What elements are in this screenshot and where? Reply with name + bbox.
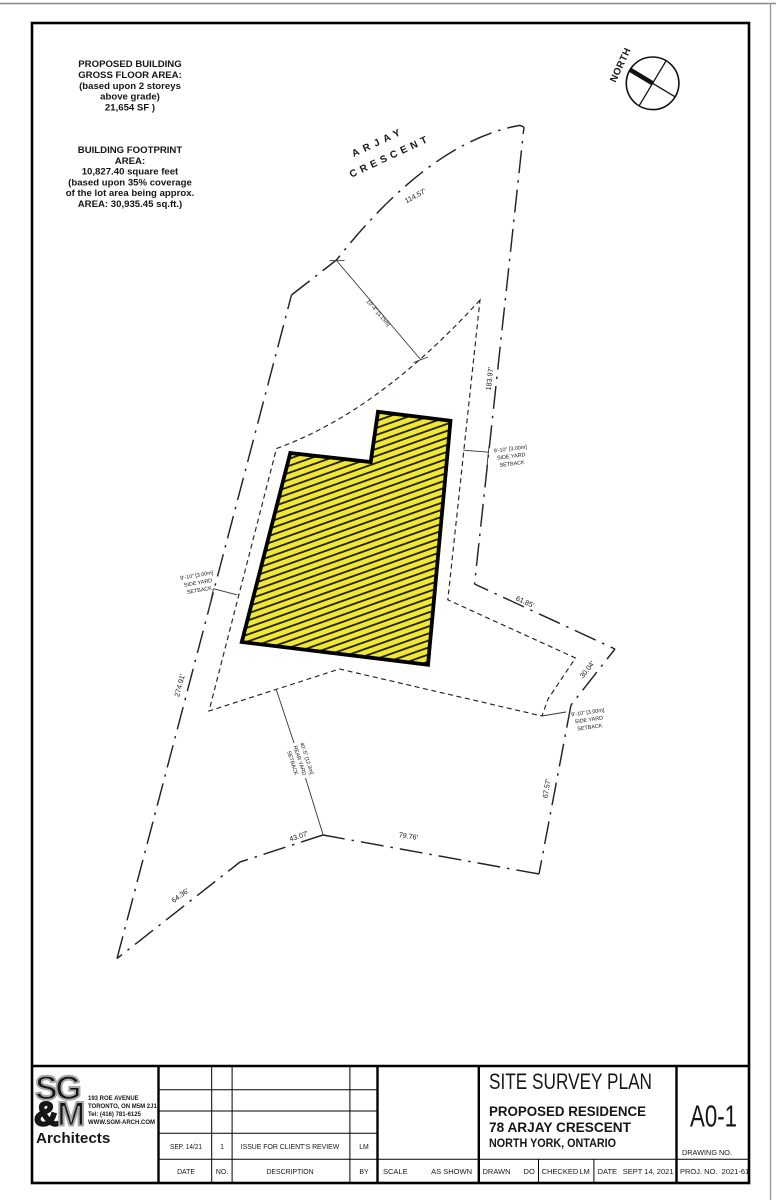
svg-text:AREA:: AREA: — [115, 156, 145, 167]
svg-text:SITE SURVEY PLAN: SITE SURVEY PLAN — [489, 1069, 652, 1094]
svg-text:DRAWN: DRAWN — [483, 1167, 511, 1176]
svg-text:DO: DO — [524, 1167, 535, 1176]
svg-text:A0-1: A0-1 — [690, 1099, 737, 1134]
svg-text:WWW.SGM-ARCH.COM: WWW.SGM-ARCH.COM — [88, 1120, 155, 1126]
svg-text:PROPOSED BUILDING: PROPOSED BUILDING — [78, 59, 181, 70]
svg-text:AREA: 30,935.45 sq.ft.): AREA: 30,935.45 sq.ft.) — [78, 199, 183, 210]
svg-text:DRAWING NO.: DRAWING NO. — [682, 1148, 732, 1157]
svg-text:of the lot area being approx.: of the lot area being approx. — [66, 188, 194, 199]
svg-text:193 ROE AVENUE: 193 ROE AVENUE — [88, 1096, 139, 1102]
svg-text:Tel: (416) 781-6125: Tel: (416) 781-6125 — [88, 1112, 142, 1118]
svg-text:(based upon 35% coverage: (based upon 35% coverage — [68, 177, 192, 188]
svg-text:DATE: DATE — [177, 1169, 195, 1176]
svg-text:&: & — [34, 1096, 58, 1134]
svg-text:DATE: DATE — [598, 1167, 617, 1176]
svg-text:1: 1 — [220, 1144, 224, 1151]
svg-text:78 ARJAY CRESCENT: 78 ARJAY CRESCENT — [489, 1120, 632, 1135]
svg-text:10,827.40 square feet: 10,827.40 square feet — [82, 167, 179, 178]
svg-text:above grade): above grade) — [100, 92, 160, 103]
svg-text:PROJ. NO. 2021-61: PROJ. NO. 2021-61 — [680, 1167, 749, 1176]
svg-text:AS SHOWN: AS SHOWN — [431, 1167, 472, 1176]
svg-text:GROSS FLOOR AREA:: GROSS FLOOR AREA: — [78, 70, 182, 81]
svg-text:BUILDING FOOTPRINT: BUILDING FOOTPRINT — [78, 145, 183, 156]
svg-text:LM: LM — [359, 1144, 369, 1151]
svg-text:LM: LM — [579, 1167, 589, 1176]
svg-text:SCALE: SCALE — [383, 1167, 408, 1176]
svg-text:21,654 SF ): 21,654 SF ) — [105, 103, 155, 114]
svg-text:SEPT 14, 2021: SEPT 14, 2021 — [623, 1167, 674, 1176]
svg-text:(based upon 2 storeys: (based upon 2 storeys — [79, 81, 181, 92]
svg-text:ISSUE FOR CLIENT'S REVIEW: ISSUE FOR CLIENT'S REVIEW — [241, 1144, 340, 1151]
svg-text:M: M — [57, 1096, 84, 1134]
svg-text:PROPOSED RESIDENCE: PROPOSED RESIDENCE — [489, 1104, 646, 1119]
svg-text:SEP. 14/21: SEP. 14/21 — [170, 1144, 202, 1151]
svg-text:NO.: NO. — [216, 1169, 228, 1176]
svg-text:TORONTO, ON M5M 2J1: TORONTO, ON M5M 2J1 — [88, 1104, 157, 1110]
svg-text:BY: BY — [359, 1169, 369, 1176]
svg-text:NORTH YORK, ONTARIO: NORTH YORK, ONTARIO — [489, 1138, 616, 1150]
svg-text:CHECKED: CHECKED — [542, 1167, 579, 1176]
svg-text:DESCRIPTION: DESCRIPTION — [266, 1169, 313, 1176]
svg-text:Architects: Architects — [36, 1130, 110, 1147]
